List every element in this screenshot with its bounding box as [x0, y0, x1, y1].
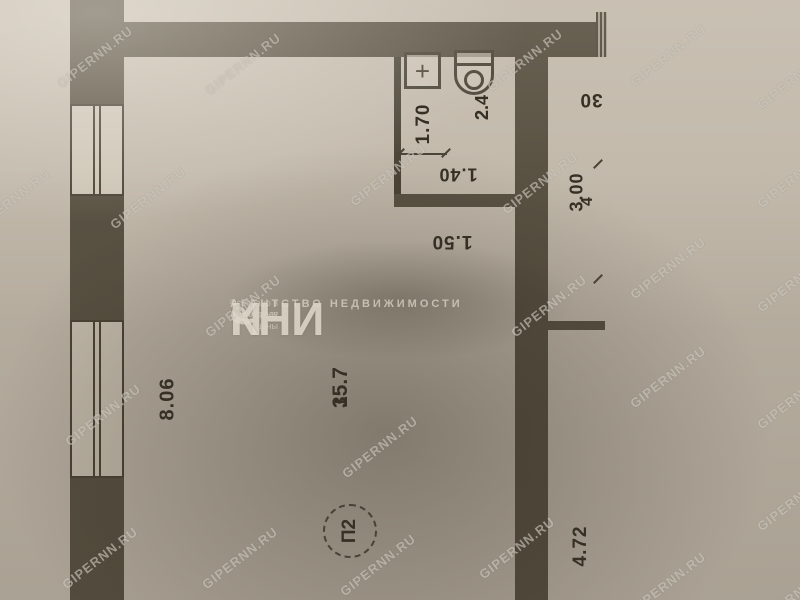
gipernn-watermark: GIPERNN.RU: [627, 21, 708, 89]
dimension-label-8.06: 8.06: [157, 378, 180, 421]
dimension-label-1.40: 1.40: [438, 164, 477, 185]
toilet-tank-line: [456, 63, 492, 66]
window-glazing: [93, 322, 101, 476]
sink-icon: +: [404, 52, 441, 89]
gipernn-watermark: GIPERNN.RU: [627, 343, 708, 411]
bathroom-bottom-wall: [394, 194, 515, 207]
gipernn-watermark: GIPERNN.RU: [0, 166, 53, 234]
dimension-label-30: 30: [579, 88, 602, 110]
gipernn-watermark: GIPERNN.RU: [754, 466, 800, 534]
toilet-bowl-circle: [464, 70, 484, 90]
gipernn-watermark: GIPERNN.RU: [754, 143, 800, 211]
dimension-label-4: 4: [579, 196, 597, 206]
window-glazing: [93, 106, 101, 194]
window-upper: [70, 104, 124, 196]
p2-stamp-circle: П2: [323, 504, 377, 558]
p2-stamp-text: П2: [325, 506, 375, 556]
floorplan-photo: + 1 35.7 2 2.4 П2 АГЕНТСТВО НЕДВИЖИМОСТИ…: [0, 0, 800, 600]
gipernn-watermark: GIPERNN.RU: [627, 549, 708, 600]
dimension-label-4.72: 4.72: [570, 526, 592, 567]
dimension-label-1.70: 1.70: [413, 104, 435, 145]
bathroom-left-wall: [394, 57, 401, 207]
gipernn-watermark: GIPERNN.RU: [754, 364, 800, 432]
room-area: 35.7: [330, 367, 352, 408]
gipernn-watermark: GIPERNN.RU: [754, 44, 800, 112]
gipernn-watermark: GIPERNN.RU: [199, 524, 280, 592]
sink-cross: +: [407, 55, 438, 86]
gipernn-watermark: GIPERNN.RU: [627, 234, 708, 302]
room-area: 2.4: [473, 95, 492, 120]
gipernn-watermark: GIPERNN.RU: [754, 247, 800, 315]
gipernn-watermark: GIPERNN.RU: [754, 561, 800, 600]
dimension-label-1.50: 1.50: [432, 230, 473, 252]
wall-top-end-hatch: [596, 12, 607, 57]
gipernn-watermark: GIPERNN.RU: [339, 413, 420, 481]
wall-stub-right: [548, 321, 605, 330]
